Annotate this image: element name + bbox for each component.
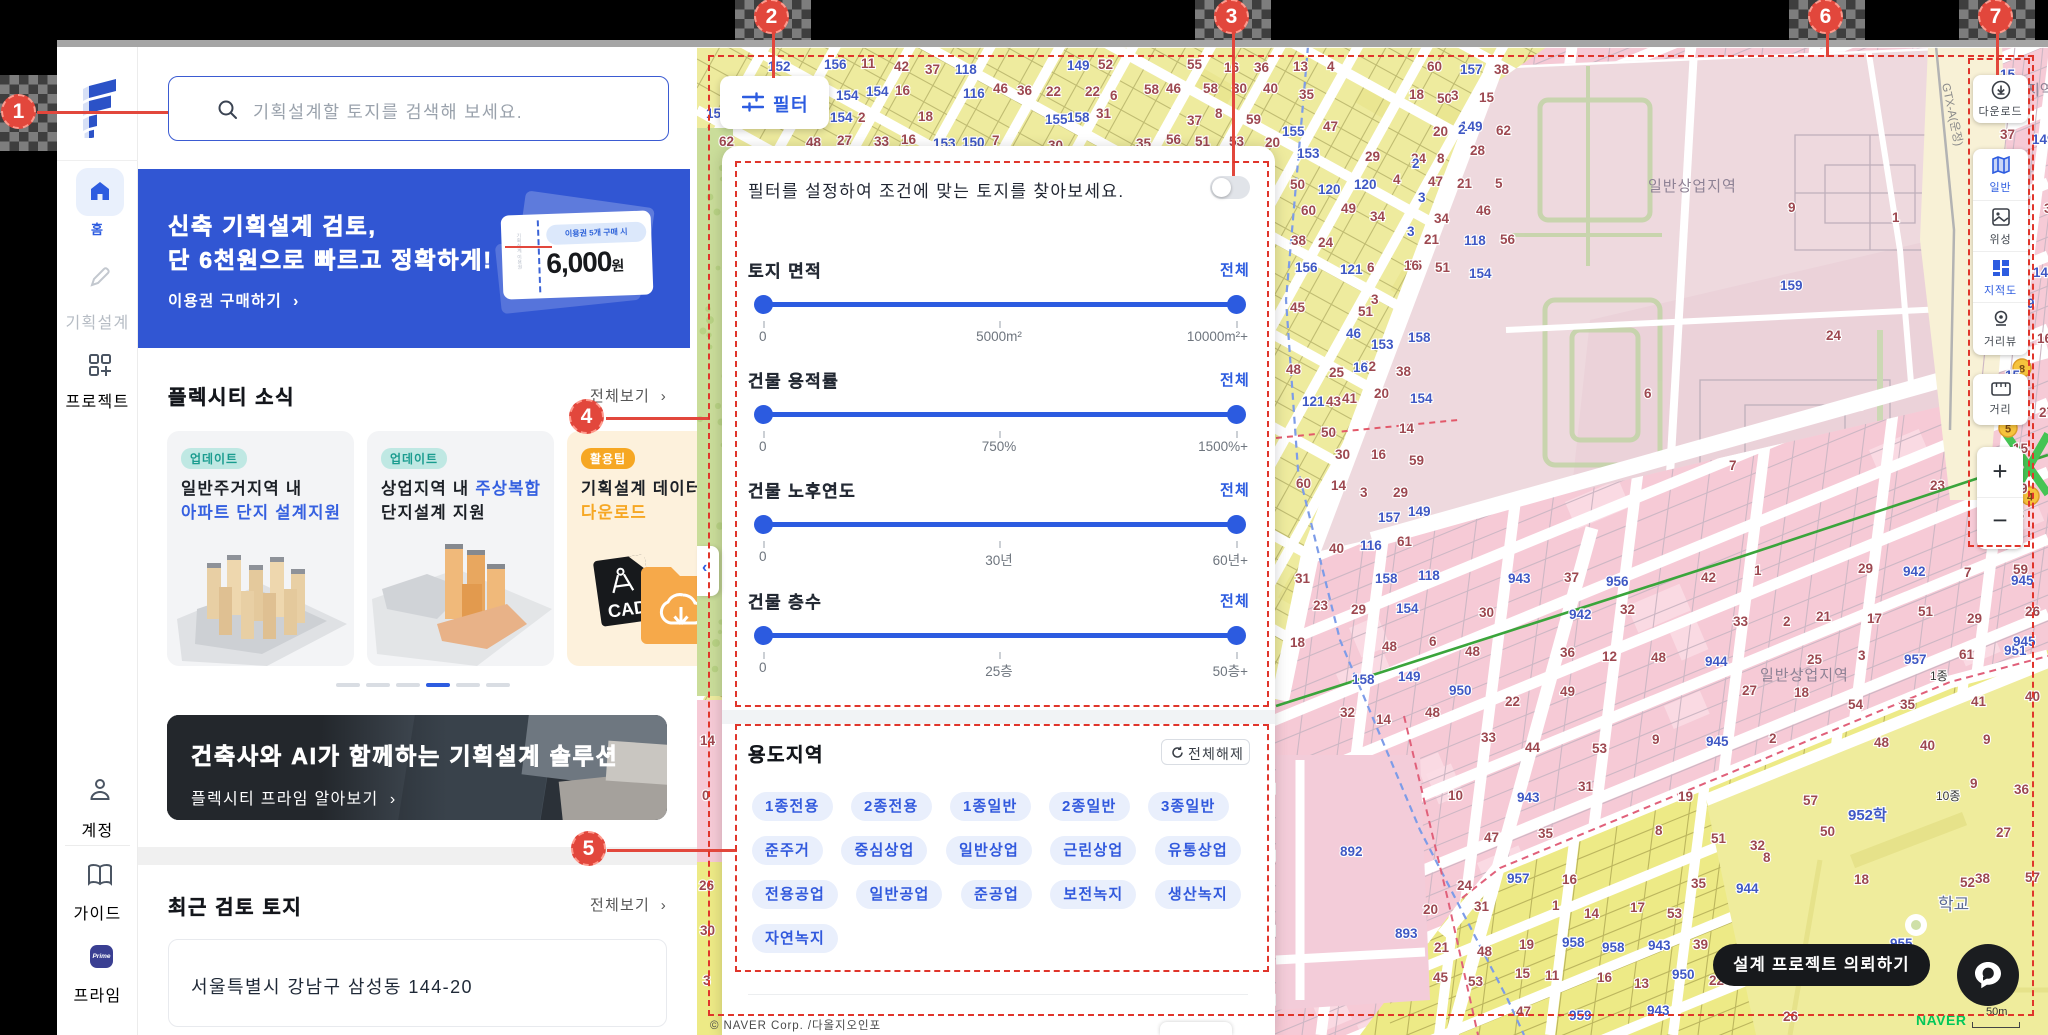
- svg-text:3: 3: [2044, 201, 2048, 216]
- svg-text:149: 149: [2032, 132, 2048, 147]
- svg-text:16: 16: [2037, 331, 2048, 346]
- svg-text:27: 27: [2039, 405, 2048, 420]
- svg-text:149: 149: [2033, 265, 2048, 280]
